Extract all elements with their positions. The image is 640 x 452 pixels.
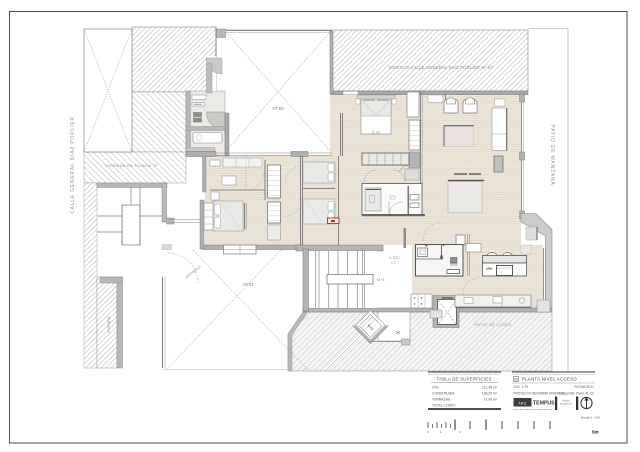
- svg-text:ARQ: ARQ: [518, 401, 526, 405]
- svg-text:1-2: 1-2: [391, 261, 396, 265]
- svg-text:5m: 5m: [592, 430, 599, 435]
- svg-text:AT.01: AT.01: [242, 282, 254, 287]
- svg-text:FECHA 05.21: FECHA 05.21: [575, 385, 595, 389]
- svg-text:PATIO DE MANZANA: PATIO DE MANZANA: [549, 124, 555, 185]
- svg-text:139,20 m²: 139,20 m²: [482, 392, 498, 396]
- svg-text:TOTAL CONST.: TOTAL CONST.: [432, 404, 456, 408]
- svg-text:02: 02: [514, 378, 518, 382]
- svg-text:TERRAZAS: TERRAZAS: [432, 398, 451, 402]
- svg-text:CALLE GENERAL DIAZ PORLIER: CALLE GENERAL DIAZ PORLIER: [70, 116, 76, 214]
- svg-text:Codigo Ref. Plano 01. 02: Codigo Ref. Plano 01. 02: [558, 392, 594, 396]
- svg-text:D. 02: D. 02: [372, 131, 380, 135]
- svg-text:V. ESC.: V. ESC.: [389, 256, 401, 260]
- svg-text:TABLA DE SUPERFICIES: TABLA DE SUPERFICIES: [436, 377, 491, 382]
- svg-text:Escala 1 : 100: Escala 1 : 100: [581, 416, 600, 420]
- svg-text:PROYECTO REFORMA VIVIENDA: PROYECTO REFORMA VIVIENDA: [514, 392, 565, 396]
- svg-text:VIVIENDA: VIVIENDA: [107, 316, 111, 333]
- svg-text:UTIL: UTIL: [432, 386, 439, 390]
- svg-text:CONSTRUIDA: CONSTRUIDA: [432, 392, 455, 396]
- svg-text:EDIFICIO CALLE GENERAL DIAZ PO: EDIFICIO CALLE GENERAL DIAZ PORLIER Nº 5…: [389, 65, 493, 70]
- svg-text:arquitectos: arquitectos: [560, 403, 573, 406]
- svg-text:PLANTA NIVEL ACCESO: PLANTA NIVEL ACCESO: [522, 377, 577, 382]
- svg-text:N +1: N +1: [377, 278, 385, 282]
- svg-text:ESC. 1:75: ESC. 1:75: [514, 385, 529, 389]
- svg-text:17,60 m²: 17,60 m²: [484, 398, 498, 402]
- svg-text:112,45 m²: 112,45 m²: [482, 386, 498, 390]
- svg-text:VIVIENDA EN PLANTA 1ª: VIVIENDA EN PLANTA 1ª: [105, 163, 158, 168]
- svg-text:PATIO DE LUCES: PATIO DE LUCES: [475, 322, 512, 327]
- svg-text:VT.02: VT.02: [272, 106, 284, 111]
- svg-text:TEMPUS: TEMPUS: [533, 401, 555, 407]
